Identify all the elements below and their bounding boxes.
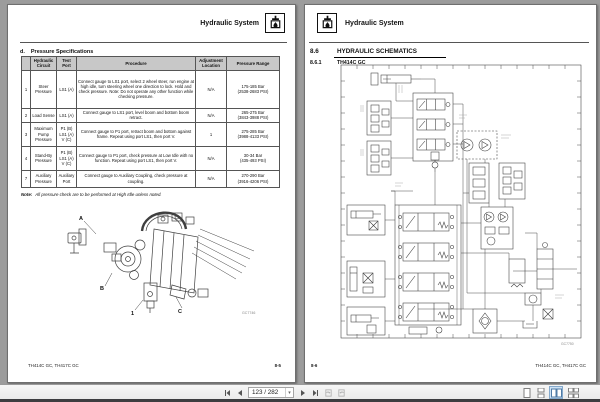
section-letter: d.	[20, 49, 25, 55]
two-page-continuous-view-icon	[568, 388, 579, 398]
hydraulic-schematic-figure: GC7750	[339, 63, 583, 349]
document-page-right: Hydraulic System 8.6 HYDRAULIC SCHEMATIC…	[304, 4, 597, 383]
row-adjustment: N/A	[196, 70, 227, 108]
row-procedure: Connect gauge to P1 port, retract boom a…	[77, 122, 196, 146]
row-test-port: Auxiliary Port	[57, 170, 77, 187]
row-num: 1	[22, 70, 31, 108]
footer-model: TH414C GC, TH417C GC	[535, 363, 586, 368]
pdf-bottom-toolbar: 123 / 282 ▾	[0, 384, 600, 399]
footer-page-number: 8-5	[275, 363, 281, 368]
row-test-port: P1 (B) LS1 (A) V (C)	[57, 146, 77, 170]
single-page-view-button[interactable]	[521, 386, 532, 399]
next-view-icon	[337, 388, 346, 398]
hydraulic-glyph-icon	[319, 14, 336, 31]
two-page-view-button[interactable]	[549, 386, 563, 399]
two-page-view-icon	[551, 388, 562, 398]
page-number-value: 123 / 282	[249, 388, 285, 398]
row-range: 270-290 Bar (3916-4206 PSI)	[227, 170, 280, 187]
figure-label-a: A	[79, 216, 83, 222]
section-number: 8.6	[310, 48, 319, 55]
hydraulic-system-chapter-icon	[317, 13, 337, 33]
two-page-continuous-view-button[interactable]	[566, 386, 580, 399]
row-test-port: P1 (B) LS1 (A) V (C)	[57, 122, 77, 146]
footer-model: TH414C GC, TH417C GC	[28, 363, 79, 368]
table-footnote: Note:All pressure check are to be perfor…	[21, 192, 162, 197]
row-test-port: LS1 (A)	[57, 108, 77, 122]
figure-label-c: C	[178, 309, 182, 315]
row-num: 2	[22, 108, 31, 122]
row-range: 275-285 Bar (3988-4133 PSI)	[227, 122, 280, 146]
note-label: Note:	[21, 192, 32, 197]
page-header-title: Hydraulic System	[200, 20, 259, 27]
next-view-button[interactable]	[337, 388, 346, 397]
row-range: 175-185 Bar (2538-2683 PSI)	[227, 70, 280, 108]
col-header-range: Pressure Range	[227, 57, 280, 71]
last-page-button[interactable]	[311, 388, 320, 397]
section-title-text: HYDRAULIC SCHEMATICS	[337, 48, 417, 55]
row-circuit: Steer Pressure	[31, 70, 57, 108]
first-page-button[interactable]	[222, 388, 231, 397]
row-circuit: Load Sense	[31, 108, 57, 122]
document-page-left: Hydraulic System d.Pressure Specificatio…	[7, 4, 296, 383]
section-heading: d.Pressure Specifications	[20, 49, 93, 55]
row-procedure: Connect gauge to LS1 port, level boom an…	[77, 108, 196, 122]
page-header-title: Hydraulic System	[345, 20, 404, 27]
col-header-num	[22, 57, 31, 71]
first-page-icon	[223, 389, 231, 397]
header-divider	[20, 42, 287, 43]
row-procedure: Connect gauge to Auxiliary Coupling, che…	[77, 170, 196, 187]
row-procedure: Connect gauge to LS1 port, select 2 whee…	[77, 70, 196, 108]
row-procedure: Connect gauge to P1 port, check pressure…	[77, 146, 196, 170]
row-adjustment: N/A	[196, 170, 227, 187]
row-adjustment: N/A	[196, 108, 227, 122]
page-navigation-cluster: 123 / 282 ▾	[222, 387, 346, 398]
row-adjustment: 1	[196, 122, 227, 146]
next-page-icon	[299, 389, 307, 397]
footer-page-number: 8-6	[311, 363, 317, 368]
table-row: 1 Steer Pressure LS1 (A) Connect gauge t…	[22, 70, 280, 108]
previous-view-icon	[324, 388, 333, 398]
page-dropdown-caret-icon[interactable]: ▾	[285, 388, 293, 397]
figure-label-1: 1	[131, 311, 134, 317]
previous-view-button[interactable]	[324, 388, 333, 397]
page-number-input[interactable]: 123 / 282 ▾	[248, 387, 294, 398]
next-page-button[interactable]	[298, 388, 307, 397]
previous-page-button[interactable]	[235, 388, 244, 397]
col-header-circuit: Hydraulic Circuit	[31, 57, 57, 71]
figure-code: GC7750	[561, 342, 574, 346]
row-num: 7	[22, 170, 31, 187]
page-layout-cluster	[521, 387, 580, 398]
hydraulic-system-chapter-icon	[265, 13, 285, 33]
hydraulic-glyph-icon	[267, 14, 284, 31]
col-header-test-port: Test Port	[57, 57, 77, 71]
continuous-view-icon	[537, 388, 545, 398]
section-title-text: Pressure Specifications	[31, 49, 93, 55]
row-circuit: Auxiliary Pressure	[31, 170, 57, 187]
pressure-specifications-table: Hydraulic Circuit Test Port Procedure Ad…	[21, 56, 280, 188]
row-circuit: Maximum Pump Pressure	[31, 122, 57, 146]
table-row: 7 Auxiliary Pressure Auxiliary Port Conn…	[22, 170, 280, 187]
col-header-procedure: Procedure	[77, 57, 196, 71]
row-range: 30-34 Bar (435-493 PSI)	[227, 146, 280, 170]
continuous-view-button[interactable]	[535, 386, 546, 399]
table-header-row: Hydraulic Circuit Test Port Procedure Ad…	[22, 57, 280, 71]
row-num: 3	[22, 122, 31, 146]
row-adjustment: N/A	[196, 146, 227, 170]
single-page-view-icon	[523, 388, 531, 398]
row-circuit: Stand-By Pressure	[31, 146, 57, 170]
figure-code: GC7746	[242, 311, 255, 315]
last-page-icon	[312, 389, 320, 397]
row-range: 265-275 Bar (3843-3988 PSI)	[227, 108, 280, 122]
col-header-adjustment: Adjustment Location	[196, 57, 227, 71]
header-divider	[309, 42, 589, 43]
table-row: 4 Stand-By Pressure P1 (B) LS1 (A) V (C)…	[22, 146, 280, 170]
row-num: 4	[22, 146, 31, 170]
table-row: 2 Load Sense LS1 (A) Connect gauge to LS…	[22, 108, 280, 122]
section-underline	[334, 57, 446, 59]
row-test-port: LS1 (A)	[57, 70, 77, 108]
previous-page-icon	[236, 389, 244, 397]
note-text: All pressure check are to be performed a…	[35, 192, 161, 197]
table-row: 3 Maximum Pump Pressure P1 (B) LS1 (A) V…	[22, 122, 280, 146]
figure-label-b: B	[100, 286, 104, 292]
subsection-number: 8.6.1	[310, 60, 322, 66]
valve-assembly-figure: A B 1 C GC7746	[46, 201, 276, 319]
pdf-viewer-window: Hydraulic System d.Pressure Specificatio…	[0, 0, 600, 402]
